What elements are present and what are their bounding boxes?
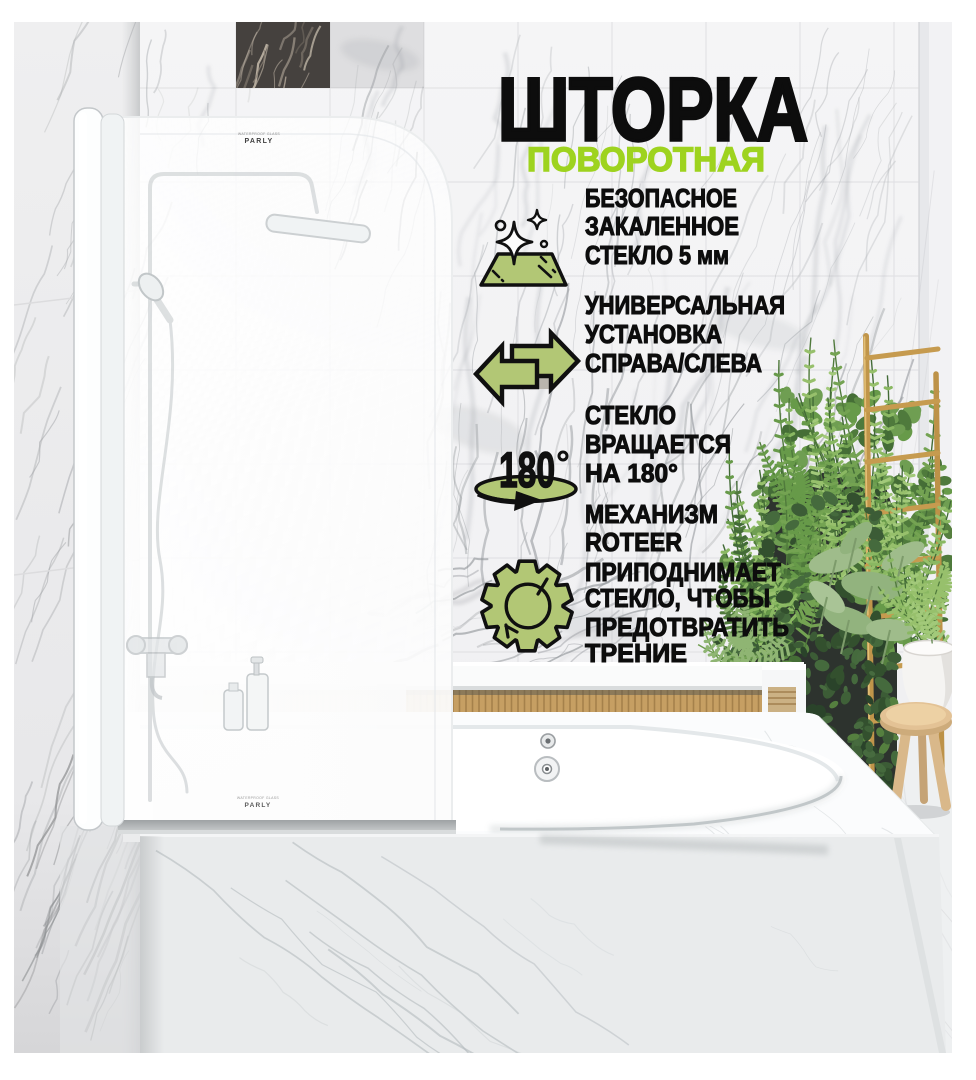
svg-text:МЕХАНИЗМ: МЕХАНИЗМ	[585, 499, 718, 529]
svg-text:СТЕКЛО 5 мм: СТЕКЛО 5 мм	[585, 240, 729, 270]
svg-text:WATERPROOF GLASS: WATERPROOF GLASS	[237, 796, 280, 800]
svg-text:УНИВЕРСАЛЬНАЯ: УНИВЕРСАЛЬНАЯ	[585, 290, 785, 320]
svg-text:СПРАВА/СЛЕВА: СПРАВА/СЛЕВА	[585, 348, 762, 378]
svg-text:ЗАКАЛЕННОЕ: ЗАКАЛЕННОЕ	[585, 211, 739, 241]
svg-text:БЕЗОПАСНОЕ: БЕЗОПАСНОЕ	[585, 183, 737, 213]
svg-text:180: 180	[499, 442, 555, 498]
svg-text:ROTEER: ROTEER	[585, 527, 682, 557]
svg-text:УСТАНОВКА: УСТАНОВКА	[585, 319, 722, 349]
svg-text:СТЕКЛО: СТЕКЛО	[585, 400, 676, 430]
svg-text:WATERPROOF GLASS: WATERPROOF GLASS	[238, 132, 281, 136]
svg-text:ПОВОРОТНАЯ: ПОВОРОТНАЯ	[527, 141, 765, 179]
svg-text:PARLY: PARLY	[245, 802, 272, 809]
svg-text:СТЕКЛО, ЧТОБЫ: СТЕКЛО, ЧТОБЫ	[585, 583, 770, 613]
svg-text:PARLY: PARLY	[244, 138, 273, 145]
svg-text:ВРАЩАЕТСЯ: ВРАЩАЕТСЯ	[585, 429, 731, 459]
svg-text:НА 180°: НА 180°	[585, 458, 678, 488]
svg-text:ТРЕНИЕ: ТРЕНИЕ	[585, 638, 687, 668]
